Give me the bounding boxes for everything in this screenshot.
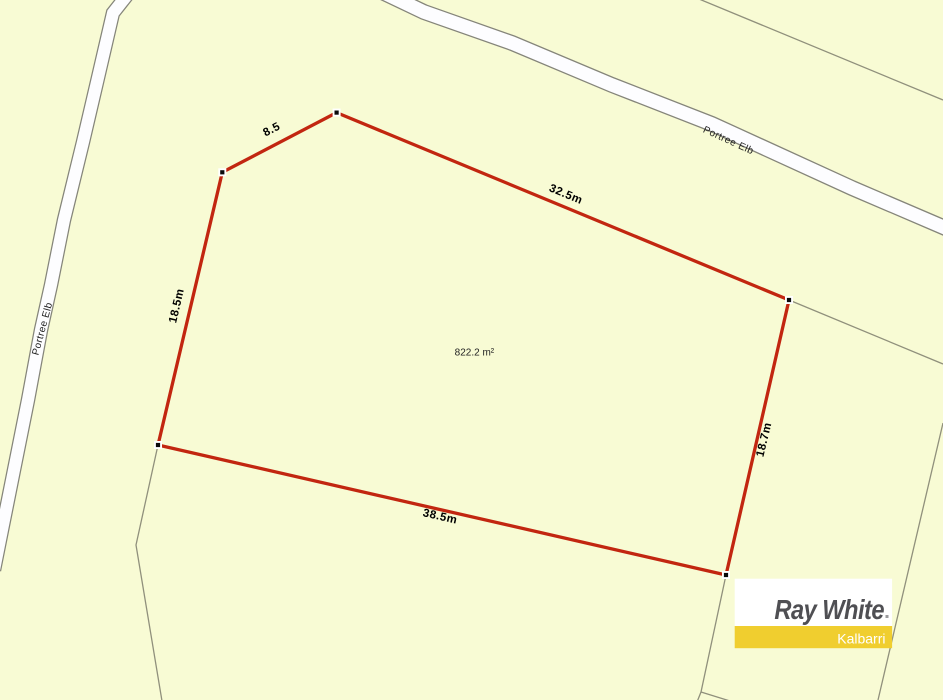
svg-text:Kalbarri: Kalbarri: [837, 631, 885, 647]
svg-text:822.2 m²: 822.2 m²: [455, 348, 495, 359]
svg-text:Ray White: Ray White: [774, 595, 884, 625]
